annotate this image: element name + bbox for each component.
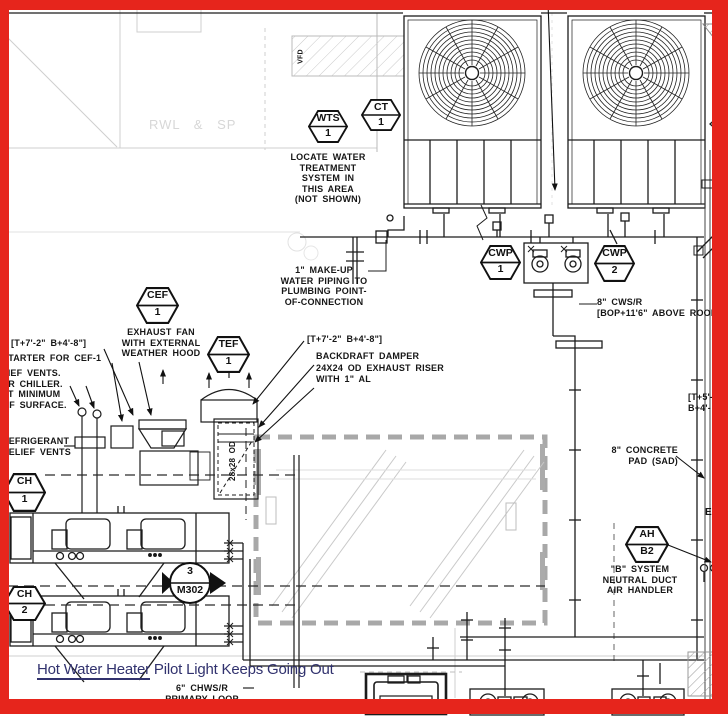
callout-tag: CEF [136,289,179,306]
note-makeup-water: 1" MAKE-UP WATER PIPING TO PLUMBING POIN… [278,265,370,307]
note-concrete-pad: 8" CONCRETE PAD (SAD) [606,445,678,466]
callout-cwp-1: CWP 1 [480,245,521,280]
note-locate-water: LOCATE WATER TREATMENT SYSTEM IN THIS AR… [284,152,372,205]
frame-right [712,0,728,714]
callout-num: 2 [594,264,635,276]
callout-num: B2 [625,545,669,557]
note-starter: STARTER FOR CEF-1 [2,353,101,364]
vfd-label: VFD [297,44,306,70]
duct-size-label: 28x28 OD [228,432,238,490]
overlay-caption-link[interactable]: Hot Water Heater Pilot Light Keeps Going… [37,661,334,678]
callout-num: 2 [3,604,46,616]
overlay-caption-underlined[interactable]: Hot Water Heater [37,661,150,680]
callout-wts-1: WTS 1 [308,110,348,143]
section-number: 3 [148,565,232,577]
callout-num: 1 [207,355,250,367]
mechanical-roof-plan: LOCATE WATER TREATMENT SYSTEM IN THIS AR… [0,0,728,721]
edge-e-label: E [705,508,712,519]
callout-ch-2: CH 2 [3,586,46,621]
callout-tag: TEF [207,338,250,355]
callout-num: 1 [480,263,521,275]
callout-tag: CH [3,475,46,493]
callout-tag: WTS [308,112,348,127]
callout-ah-b2: AH B2 [625,526,669,563]
callout-tag: CWP [480,247,521,263]
note-bracket-left: [T+7'-2" B+4'-8"] [11,338,86,349]
callout-num: 1 [361,116,401,128]
callout-tag: CWP [594,247,635,264]
note-bracket-right: [T+5'- B+4'- [688,392,713,413]
callout-num: 1 [136,306,179,318]
overlay-caption-rest[interactable]: Pilot Light Keeps Going Out [150,661,334,678]
note-relief-partial: LIEF VENTS. ER CHILLER. AT MINIMUM OF SU… [2,368,67,410]
section-marker-m302: 3 M302 [148,561,232,605]
rwl-sp-label: RWL & SP [149,117,236,132]
callout-tag: CH [3,588,46,604]
frame-left [0,0,9,714]
note-refrigerant: REFRIGERANT RELIEF VENTS [2,436,71,457]
callout-cef-1: CEF 1 [136,287,179,324]
frame-bottom [0,699,728,714]
note-cws: 8" CWS/R [BOP+11'6" ABOVE ROOF] [597,297,727,318]
callout-tef-1: TEF 1 [207,336,250,373]
frame-top [0,0,728,10]
section-sheet: M302 [148,584,232,596]
note-exhaust-fan: EXHAUST FAN WITH EXTERNAL WEATHER HOOD [119,327,203,359]
callout-ch-1: CH 1 [3,473,46,512]
callout-tag: CT [361,101,401,116]
note-bracket-tef: [T+7'-2" B+4'-8"] [307,334,382,345]
callout-tag: AH [625,528,669,545]
callout-num: 1 [308,127,348,139]
callout-num: 1 [3,493,46,505]
callout-cwp-2: CWP 2 [594,245,635,282]
note-b-system: "B" SYSTEM NEUTRAL DUCT AIR HANDLER [601,564,679,596]
note-backdraft: BACKDRAFT DAMPER 24X24 OD EXHAUST RISER … [316,351,444,386]
callout-ct-1: CT 1 [361,99,401,131]
